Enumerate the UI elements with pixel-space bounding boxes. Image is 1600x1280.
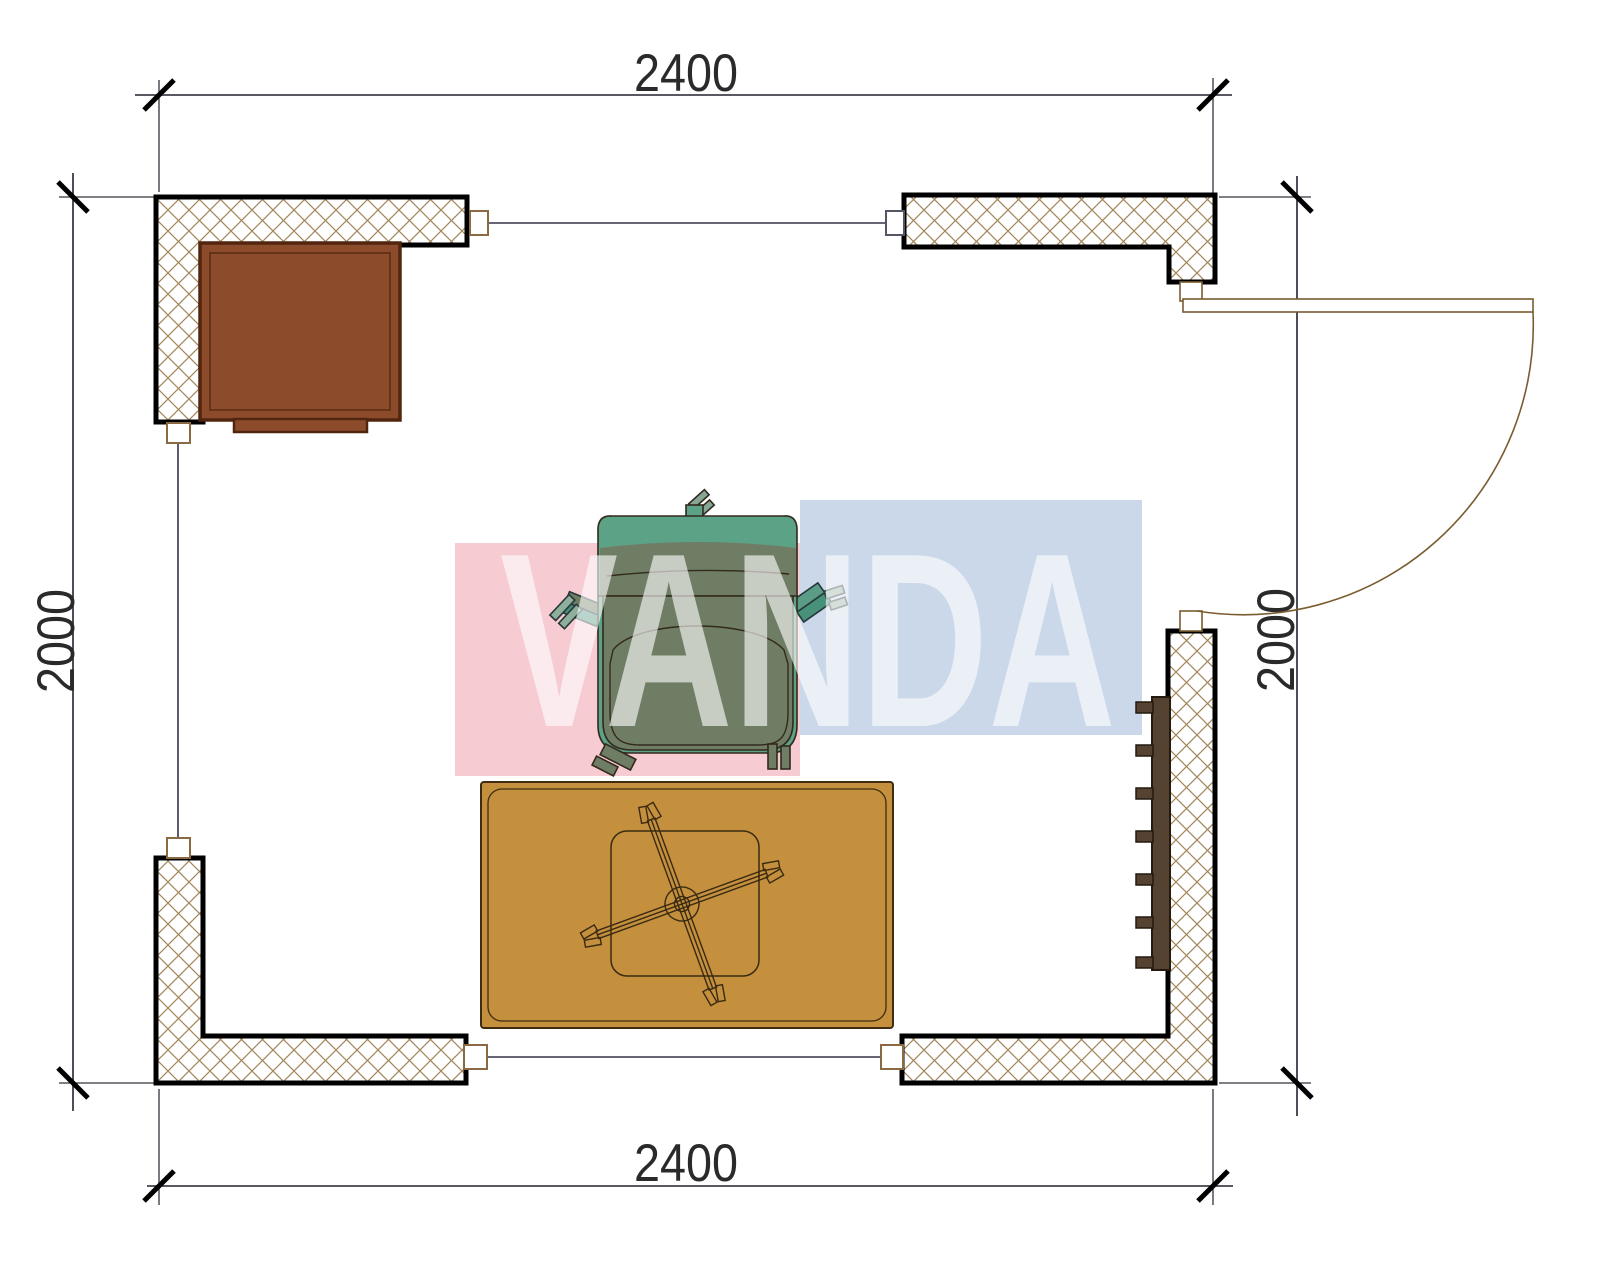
svg-text:2400: 2400	[634, 1134, 738, 1193]
svg-text:2000: 2000	[1247, 588, 1306, 692]
svg-text:2400: 2400	[634, 44, 738, 103]
svg-text:2000: 2000	[27, 589, 86, 693]
svg-text:VANDA: VANDA	[500, 501, 1116, 779]
